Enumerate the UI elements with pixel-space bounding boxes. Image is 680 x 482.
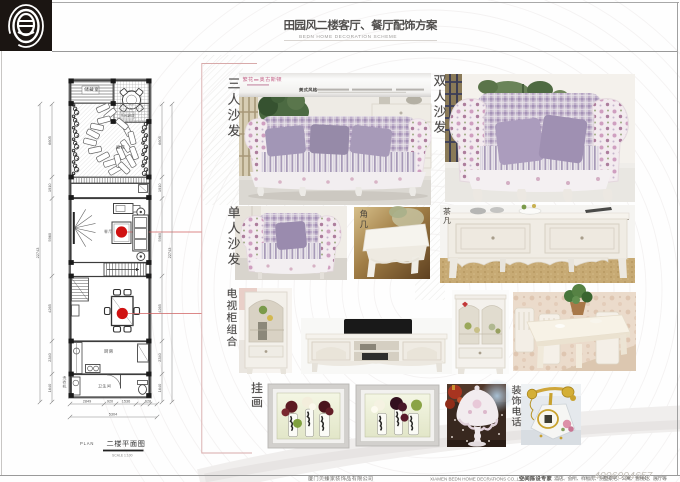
svg-text:XIAMEN BEDN HOME DECRATIONS CO: XIAMEN BEDN HOME DECRATIONS CO.,LTD: [430, 476, 526, 481]
